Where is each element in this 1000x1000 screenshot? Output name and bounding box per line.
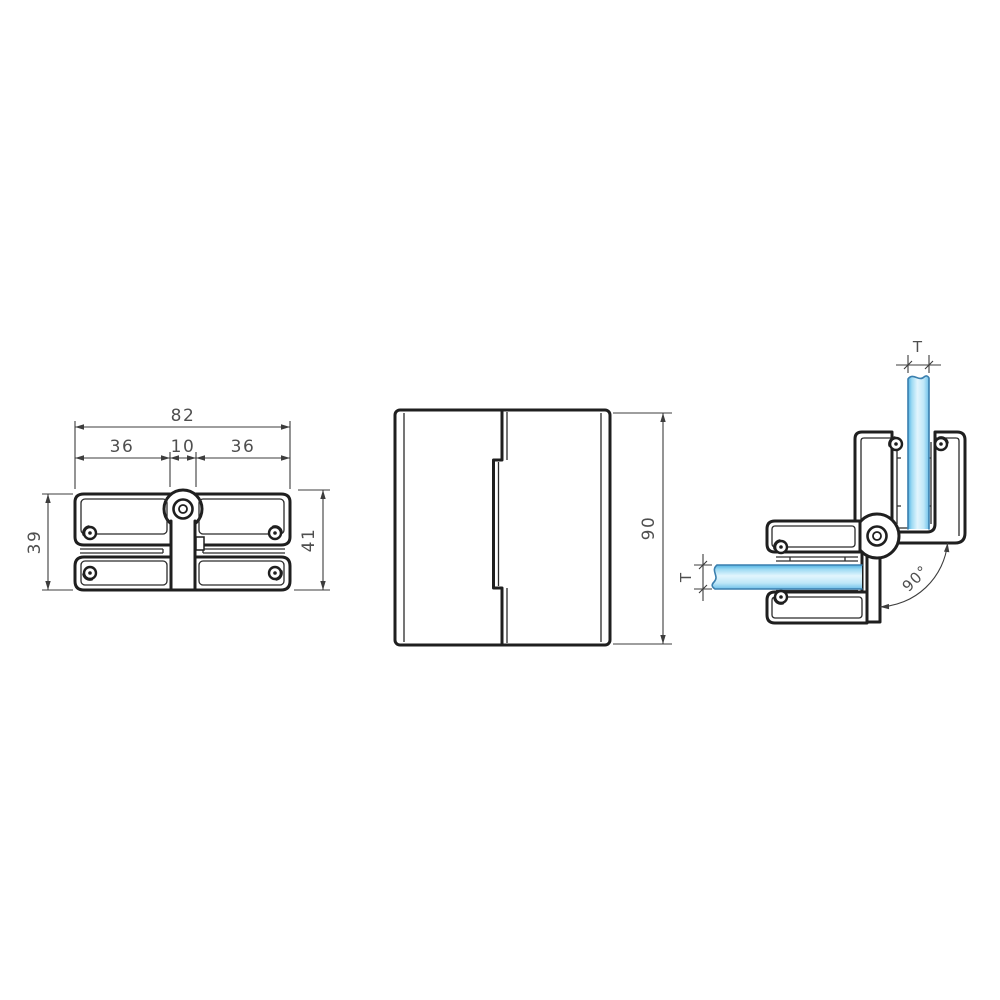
front-gasket-left-slot <box>80 549 163 553</box>
dim-glass-thickness-top: T <box>896 338 941 373</box>
screw-detail <box>84 567 96 579</box>
dim-height-right: 41 <box>294 490 330 590</box>
dim-side-height-label: 90 <box>639 516 659 541</box>
screw-detail <box>84 527 96 539</box>
open-pivot-hole <box>873 532 881 540</box>
dim-glass-thickness-left: T <box>677 554 712 601</box>
dim-width-left-label: 36 <box>110 437 135 457</box>
front-gasket-right-slot <box>203 549 285 553</box>
dim-height-left: 39 <box>25 494 73 590</box>
screw-detail <box>775 541 787 553</box>
side-view: 90 <box>395 410 672 645</box>
front-pivot-hole <box>179 505 187 513</box>
dim-height-right-label: 41 <box>299 528 319 553</box>
screw-detail <box>269 567 281 579</box>
front-view: 82 36 10 36 39 41 <box>25 406 330 590</box>
glass-panel-horizontal <box>712 565 862 589</box>
dim-width-right-label: 36 <box>231 437 256 457</box>
dim-width-segments: 36 10 36 <box>75 437 290 487</box>
screw-detail <box>269 527 281 539</box>
screw-detail <box>935 438 947 450</box>
dim-width-total-label: 82 <box>171 406 196 426</box>
dim-glass-thickness-left-label: T <box>677 572 695 583</box>
dim-glass-thickness-top-label: T <box>912 338 923 356</box>
glass-panel-vertical <box>908 376 929 529</box>
dim-opening-angle-label: 90° <box>899 562 933 596</box>
screw-detail <box>890 438 902 450</box>
open-angle-view: 90° T T <box>677 338 965 623</box>
front-lock-detail <box>196 537 204 550</box>
dim-height-left-label: 39 <box>25 530 45 555</box>
dim-width-center-label: 10 <box>171 437 196 457</box>
screw-detail <box>775 591 787 603</box>
dim-side-height: 90 <box>613 413 672 644</box>
technical-drawing: 82 36 10 36 39 41 <box>0 0 1000 1000</box>
